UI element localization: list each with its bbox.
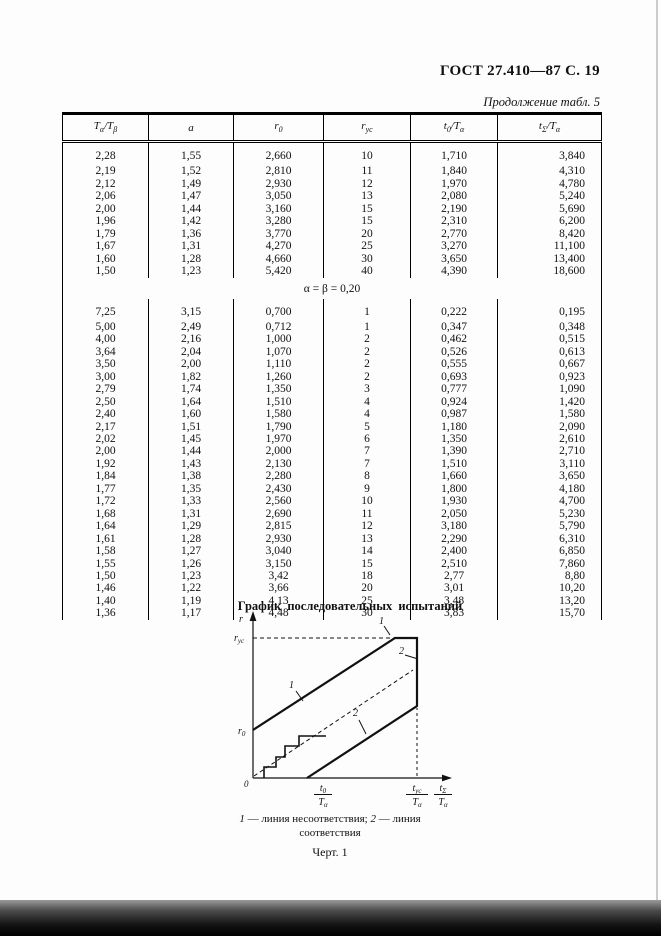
table-cell: 2,49 — [149, 321, 234, 333]
table-cell: 1,800 — [411, 483, 498, 495]
table-cell: 1,50 — [63, 265, 149, 277]
table-cell: 1,52 — [149, 165, 234, 177]
table-cell: 9 — [324, 483, 411, 495]
table-cell: 3,110 — [498, 458, 602, 470]
table-cell: 15 — [324, 215, 411, 227]
table-row: 1,581,273,040142,4006,850 — [63, 545, 602, 557]
table-cell: 8 — [324, 470, 411, 482]
table-cell: 1,790 — [234, 421, 324, 433]
table-row: 3,001,821,26020,6930,923 — [63, 371, 602, 383]
table-cell: 18 — [324, 570, 411, 582]
table-cell: 10,20 — [498, 582, 602, 594]
table-cell: 2,130 — [234, 458, 324, 470]
table-cell: 3,050 — [234, 190, 324, 202]
table-cell: 1,710 — [411, 142, 498, 166]
origin-label: 0 — [244, 779, 249, 789]
table-cell: 0,348 — [498, 321, 602, 333]
table-cell: 15 — [324, 558, 411, 570]
table-cell: 0,777 — [411, 383, 498, 395]
table-cell: 3,840 — [498, 142, 602, 166]
x-label-tus-over-ta: tус Tα — [406, 783, 428, 808]
table-row: 2,501,641,51040,9241,420 — [63, 396, 602, 408]
table-cell: 3,42 — [234, 570, 324, 582]
table-cell: 2,930 — [234, 178, 324, 190]
table-cell: 3,280 — [234, 215, 324, 227]
table-cell: 0,700 — [234, 299, 324, 321]
table-cell: 1,29 — [149, 520, 234, 532]
table-cell: 5,790 — [498, 520, 602, 532]
table-cell: 1,44 — [149, 203, 234, 215]
table-cell: 11,100 — [498, 240, 602, 252]
table-cell: 2 — [324, 358, 411, 370]
table-cell: 11 — [324, 508, 411, 520]
table-row: 1,681,312,690112,0505,230 — [63, 508, 602, 520]
table-cell: 1,38 — [149, 470, 234, 482]
table-cell: 1,47 — [149, 190, 234, 202]
table-cell: 0,515 — [498, 333, 602, 345]
table-cell: 0,924 — [411, 396, 498, 408]
table-cell: 4,700 — [498, 495, 602, 507]
table-cell: 1,31 — [149, 240, 234, 252]
table-cell: 1,61 — [63, 533, 149, 545]
table-cell: 1,660 — [411, 470, 498, 482]
table-row: 1,841,382,28081,6603,650 — [63, 470, 602, 482]
table-cell: 0,613 — [498, 346, 602, 358]
table-cell: 10 — [324, 495, 411, 507]
table-cell: 1,930 — [411, 495, 498, 507]
table-cell: 15 — [324, 203, 411, 215]
table-cell: 2,710 — [498, 445, 602, 457]
table-cell: 1,26 — [149, 558, 234, 570]
table-cell: 4,310 — [498, 165, 602, 177]
table-cell: 1,070 — [234, 346, 324, 358]
table-row: 1,501,233,42182,778,80 — [63, 570, 602, 582]
table-cell: 2 — [324, 371, 411, 383]
table-cell: 2,400 — [411, 545, 498, 557]
table-cell: 7 — [324, 458, 411, 470]
document-page: ГОСТ 27.410—87 С. 19 Продолжение табл. 5… — [0, 0, 661, 936]
table-cell: 5,420 — [234, 265, 324, 277]
table-cell: 1,44 — [149, 445, 234, 457]
table-cell: 2,04 — [149, 346, 234, 358]
table-cell: 1,49 — [149, 178, 234, 190]
table-cell: 1,43 — [149, 458, 234, 470]
table-row: 3,642,041,07020,5260,613 — [63, 346, 602, 358]
table-cell: 1,390 — [411, 445, 498, 457]
table-cell: 1,36 — [149, 228, 234, 240]
table-row: 1,671,314,270253,27011,100 — [63, 240, 602, 252]
line2-label-right: 2 — [399, 646, 404, 657]
table-row: 1,461,223,66203,0110,20 — [63, 582, 602, 594]
table-cell: 2,00 — [63, 203, 149, 215]
table-cell: 6,310 — [498, 533, 602, 545]
svg-text:Tα: Tα — [438, 797, 448, 808]
table-row: 1,501,235,420404,39018,600 — [63, 265, 602, 277]
table-cell: 1,45 — [149, 433, 234, 445]
table-cell: 1,79 — [63, 228, 149, 240]
table-row: 2,791,741,35030,7771,090 — [63, 383, 602, 395]
table-cell: 2,17 — [63, 421, 149, 433]
table-cell: 4,270 — [234, 240, 324, 252]
table-header: Tα/Tβ a r0 rус t0/Tα tΣ/Tα — [63, 114, 602, 142]
table-cell: 6,850 — [498, 545, 602, 557]
table-cell: 5,240 — [498, 190, 602, 202]
table-cell: 7,25 — [63, 299, 149, 321]
table-cell: 3 — [324, 383, 411, 395]
y-axis-arrow-icon — [250, 611, 257, 621]
table-cell: 1,350 — [234, 383, 324, 395]
line2-tick-mid — [359, 720, 366, 734]
table-cell: 5,230 — [498, 508, 602, 520]
table-row: 2,021,451,97061,3502,610 — [63, 433, 602, 445]
table-cell: 4,390 — [411, 265, 498, 277]
table-cell: 1,51 — [149, 421, 234, 433]
diagram-canvas: r 0 rус r0 1 1 2 2 t0 Tα tус Tα — [233, 608, 463, 808]
table-cell: 11 — [324, 165, 411, 177]
table-cell: 1,180 — [411, 421, 498, 433]
figure-caption-line1: 1 — линия несоответствия; 2 — линия — [170, 812, 490, 826]
table-cell: 2,660 — [234, 142, 324, 166]
table-cell: 2,79 — [63, 383, 149, 395]
svg-text:tΣ: tΣ — [440, 783, 448, 795]
table-cell: 5,00 — [63, 321, 149, 333]
col-r0: r0 — [234, 114, 324, 142]
table-cell: 2,090 — [498, 421, 602, 433]
table-cell: 4 — [324, 396, 411, 408]
table-cell: 18,600 — [498, 265, 602, 277]
table-cell: 1,000 — [234, 333, 324, 345]
table-cell: 1,510 — [234, 396, 324, 408]
section-label: α = β = 0,20 — [63, 278, 602, 299]
line1-label-top: 1 — [379, 616, 384, 627]
table-cell: 8,420 — [498, 228, 602, 240]
table-cell: 1,84 — [63, 470, 149, 482]
table-cell: 8,80 — [498, 570, 602, 582]
table-cell: 4,180 — [498, 483, 602, 495]
svg-text:Tα: Tα — [318, 797, 328, 808]
table-cell: 3,15 — [149, 299, 234, 321]
table-cell: 2,06 — [63, 190, 149, 202]
table-cell: 4,780 — [498, 178, 602, 190]
col-ts-ta: tΣ/Tα — [498, 114, 602, 142]
table-cell: 1,50 — [63, 570, 149, 582]
table-row: 1,721,332,560101,9304,700 — [63, 495, 602, 507]
table-cell: 3,270 — [411, 240, 498, 252]
table-cell: 3,66 — [234, 582, 324, 594]
figure-number: Черт. 1 — [170, 845, 490, 860]
table-cell: 2 — [324, 346, 411, 358]
table-cell: 0,555 — [411, 358, 498, 370]
table-row: 2,281,552,660101,7103,840 — [63, 142, 602, 166]
table-cell: 0,526 — [411, 346, 498, 358]
table-cell: 1,23 — [149, 265, 234, 277]
table-cell: 1,72 — [63, 495, 149, 507]
table-cell: 2,810 — [234, 165, 324, 177]
table-row: 1,641,292,815123,1805,790 — [63, 520, 602, 532]
table-cell: 5,690 — [498, 203, 602, 215]
page-bottom-shadow — [0, 900, 661, 936]
table-row: 7,253,150,70010,2220,195 — [63, 299, 602, 321]
x-label-t0-over-ta: t0 Tα — [314, 783, 332, 808]
table-cell: 1,580 — [498, 408, 602, 420]
section-label-row: α = β = 0,20 — [63, 278, 602, 299]
table-cell: 1,970 — [234, 433, 324, 445]
table-cell: 2,280 — [234, 470, 324, 482]
table-row: 2,121,492,930121,9704,780 — [63, 178, 602, 190]
figure-caption-line2: соответствия — [170, 826, 490, 840]
table-cell: 0,462 — [411, 333, 498, 345]
table-cell: 1,28 — [149, 253, 234, 265]
table-cell: 1,64 — [63, 520, 149, 532]
x-axis-arrow-icon — [442, 775, 452, 782]
table-cell: 1,22 — [149, 582, 234, 594]
table-cell: 2,080 — [411, 190, 498, 202]
table-cell: 2,16 — [149, 333, 234, 345]
svg-text:Tα: Tα — [412, 797, 422, 808]
table-row: 2,001,443,160152,1905,690 — [63, 203, 602, 215]
table-cell: 3,180 — [411, 520, 498, 532]
table-cell: 1,67 — [63, 240, 149, 252]
table-cell: 1,110 — [234, 358, 324, 370]
table-cell: 1,35 — [149, 483, 234, 495]
page-right-edge-shadow — [656, 0, 658, 936]
table-cell: 4,660 — [234, 253, 324, 265]
table-cell: 3,650 — [498, 470, 602, 482]
table-cell: 1,92 — [63, 458, 149, 470]
table-cell: 6 — [324, 433, 411, 445]
table-cell: 3,01 — [411, 582, 498, 594]
table-cell: 30 — [324, 253, 411, 265]
table-cell: 1,23 — [149, 570, 234, 582]
table-cell: 2,690 — [234, 508, 324, 520]
col-rus: rус — [324, 114, 411, 142]
table-cell: 3,770 — [234, 228, 324, 240]
table-cell: 3,50 — [63, 358, 149, 370]
table-cell: 1,580 — [234, 408, 324, 420]
table-cell: 2,40 — [63, 408, 149, 420]
table-cell: 2 — [324, 333, 411, 345]
table-cell: 2,28 — [63, 142, 149, 166]
table-cell: 4,00 — [63, 333, 149, 345]
table-cell: 13 — [324, 533, 411, 545]
table-row: 1,921,432,13071,5103,110 — [63, 458, 602, 470]
table-cell: 0,195 — [498, 299, 602, 321]
table-cell: 2,930 — [234, 533, 324, 545]
table-cell: 12 — [324, 178, 411, 190]
table-cell: 1,090 — [498, 383, 602, 395]
table-cell: 20 — [324, 582, 411, 594]
table-row: 5,002,490,71210,3470,348 — [63, 321, 602, 333]
x-label-tsum-over-ta: tΣ Tα — [434, 783, 452, 808]
col-ta-tb: Tα/Tβ — [63, 114, 149, 142]
sequential-test-diagram: r 0 rус r0 1 1 2 2 t0 Tα tус Tα — [233, 608, 463, 808]
r-0-label: r0 — [238, 726, 246, 738]
table-row: 1,791,363,770202,7708,420 — [63, 228, 602, 240]
table-cell: 1,31 — [149, 508, 234, 520]
table-cell: 2,50 — [63, 396, 149, 408]
table-cell: 1,420 — [498, 396, 602, 408]
line2-label-mid: 2 — [353, 708, 358, 719]
table-row: 1,601,284,660303,65013,400 — [63, 253, 602, 265]
table-cell: 0,693 — [411, 371, 498, 383]
table-cell: 1,58 — [63, 545, 149, 557]
line1-label-mid: 1 — [289, 680, 294, 691]
line1-tick-top — [384, 626, 390, 635]
table-cell: 2,19 — [63, 165, 149, 177]
table-body: 2,281,552,660101,7103,8402,191,522,81011… — [63, 142, 602, 620]
table-cell: 25 — [324, 240, 411, 252]
table-cell: 3,040 — [234, 545, 324, 557]
table-continuation-note: Продолжение табл. 5 — [483, 95, 600, 110]
table-cell: 2,00 — [63, 445, 149, 457]
table-cell: 1,68 — [63, 508, 149, 520]
table-row: 2,061,473,050132,0805,240 — [63, 190, 602, 202]
table-cell: 2,190 — [411, 203, 498, 215]
col-a: a — [149, 114, 234, 142]
table-cell: 0,667 — [498, 358, 602, 370]
table-cell: 2,610 — [498, 433, 602, 445]
table-cell: 1,350 — [411, 433, 498, 445]
table-row: 2,401,601,58040,9871,580 — [63, 408, 602, 420]
table-cell: 2,310 — [411, 215, 498, 227]
table-row: 3,502,001,11020,5550,667 — [63, 358, 602, 370]
svg-text:t0: t0 — [320, 783, 327, 795]
table-cell: 0,347 — [411, 321, 498, 333]
table-cell: 2,815 — [234, 520, 324, 532]
table-cell: 1,96 — [63, 215, 149, 227]
table-cell: 2,77 — [411, 570, 498, 582]
table-cell: 1 — [324, 321, 411, 333]
table-cell: 13,400 — [498, 253, 602, 265]
table-cell: 3,650 — [411, 253, 498, 265]
table-cell: 2,000 — [234, 445, 324, 457]
table-cell: 2,510 — [411, 558, 498, 570]
table-cell: 1,60 — [63, 253, 149, 265]
table-cell: 1,260 — [234, 371, 324, 383]
table-cell: 1,510 — [411, 458, 498, 470]
table-cell: 14 — [324, 545, 411, 557]
table-cell: 7,860 — [498, 558, 602, 570]
col-t0-ta: t0/Tα — [411, 114, 498, 142]
table-cell: 1,82 — [149, 371, 234, 383]
table-cell: 0,222 — [411, 299, 498, 321]
table-cell: 1,74 — [149, 383, 234, 395]
r-us-label: rус — [234, 633, 245, 645]
sequential-test-plans-table: Tα/Tβ a r0 rус t0/Tα tΣ/Tα 2,281,552,660… — [62, 112, 602, 620]
table-cell: 1,60 — [149, 408, 234, 420]
table-cell: 1,64 — [149, 396, 234, 408]
table-cell: 2,430 — [234, 483, 324, 495]
table-cell: 7 — [324, 445, 411, 457]
table-cell: 1,28 — [149, 533, 234, 545]
table-cell: 1,33 — [149, 495, 234, 507]
table-cell: 13 — [324, 190, 411, 202]
y-axis-label: r — [239, 614, 243, 625]
gost-standard-header: ГОСТ 27.410—87 С. 19 — [440, 63, 600, 80]
table-cell: 2,560 — [234, 495, 324, 507]
table-row: 1,961,423,280152,3106,200 — [63, 215, 602, 227]
table-cell: 5 — [324, 421, 411, 433]
table-row: 2,191,522,810111,8404,310 — [63, 165, 602, 177]
table-cell: 0,987 — [411, 408, 498, 420]
table-row: 1,771,352,43091,8004,180 — [63, 483, 602, 495]
table-cell: 2,770 — [411, 228, 498, 240]
table-cell: 3,160 — [234, 203, 324, 215]
table-cell: 10 — [324, 142, 411, 166]
table-cell: 1,46 — [63, 582, 149, 594]
table-cell: 1,27 — [149, 545, 234, 557]
table-row: 2,001,442,00071,3902,710 — [63, 445, 602, 457]
table-cell: 20 — [324, 228, 411, 240]
table-cell: 0,923 — [498, 371, 602, 383]
table-cell: 4 — [324, 408, 411, 420]
table-cell: 3,150 — [234, 558, 324, 570]
table-cell: 12 — [324, 520, 411, 532]
table-cell: 1,77 — [63, 483, 149, 495]
table-row: 2,171,511,79051,1802,090 — [63, 421, 602, 433]
figure-caption: 1 — линия несоответствия; 2 — линия соот… — [170, 812, 490, 840]
svg-text:tус: tус — [413, 783, 423, 795]
table-cell: 6,200 — [498, 215, 602, 227]
table-cell: 1,970 — [411, 178, 498, 190]
table-cell: 1,840 — [411, 165, 498, 177]
table-cell: 2,290 — [411, 533, 498, 545]
table-header-row: Tα/Tβ a r0 rус t0/Tα tΣ/Tα — [63, 114, 602, 142]
table-cell: 3,64 — [63, 346, 149, 358]
table-cell: 2,050 — [411, 508, 498, 520]
table-row: 1,551,263,150152,5107,860 — [63, 558, 602, 570]
table-row: 1,611,282,930132,2906,310 — [63, 533, 602, 545]
table-cell: 1,55 — [149, 142, 234, 166]
table-cell: 2,12 — [63, 178, 149, 190]
table-cell: 3,00 — [63, 371, 149, 383]
table-cell: 0,712 — [234, 321, 324, 333]
table-row: 4,002,161,00020,4620,515 — [63, 333, 602, 345]
table-cell: 1,55 — [63, 558, 149, 570]
table-cell: 1 — [324, 299, 411, 321]
table-cell: 2,00 — [149, 358, 234, 370]
table-cell: 2,02 — [63, 433, 149, 445]
table-cell: 1,42 — [149, 215, 234, 227]
table-cell: 40 — [324, 265, 411, 277]
